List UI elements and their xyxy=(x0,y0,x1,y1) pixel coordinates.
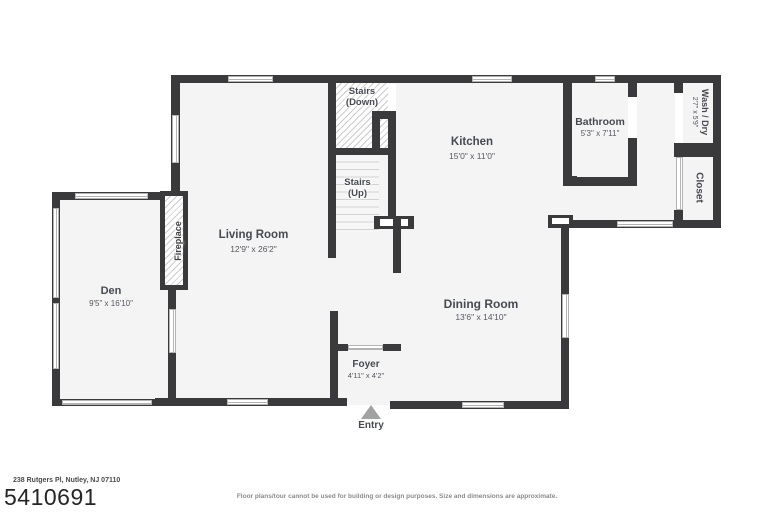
wall-segment xyxy=(572,177,637,186)
washdry-label: Wash / Dry 2'7" x 5'9" xyxy=(684,72,710,152)
property-address: 238 Rutgers Pl, Nutley, NJ 07110 xyxy=(13,477,120,484)
dining-room-label: Dining Room 13'6" x 14'10" xyxy=(411,297,551,322)
closet-label: Closet xyxy=(692,158,705,218)
window xyxy=(472,76,512,82)
wall-segment xyxy=(330,311,338,404)
closet-name: Closet xyxy=(693,158,705,218)
stairs-up-label: Stairs (Up) xyxy=(330,177,385,199)
wall-segment xyxy=(372,111,396,119)
wall-segment xyxy=(372,119,380,155)
window xyxy=(75,193,148,199)
window xyxy=(172,115,179,163)
door-inset xyxy=(552,218,569,224)
living-room-label: Living Room 12'9" x 26'2" xyxy=(181,229,326,254)
foyer-label: Foyer 4'11" x 4'2" xyxy=(336,359,396,381)
wall-segment xyxy=(393,216,401,273)
dining-room-dims: 13'6" x 14'10" xyxy=(411,312,551,322)
wall-segment xyxy=(388,111,396,217)
den-label: Den 9'5" x 16'10" xyxy=(61,285,161,308)
window xyxy=(228,76,273,82)
wall-segment xyxy=(328,83,336,258)
window xyxy=(462,402,504,408)
window xyxy=(227,399,268,405)
stairs-down-label: Stairs (Down) xyxy=(330,86,394,108)
den-dims: 9'5" x 16'10" xyxy=(61,299,161,308)
den-name: Den xyxy=(61,285,161,298)
closet-door xyxy=(676,157,683,210)
foyer-dims: 4'11" x 4'2" xyxy=(336,372,396,381)
listing-number: 5410691 xyxy=(4,484,97,511)
entry-label: Entry xyxy=(341,420,401,432)
stairs-down-line1: Stairs xyxy=(349,86,375,97)
living-room-dims: 12'9" x 26'2" xyxy=(181,244,326,254)
bathroom-name: Bathroom xyxy=(560,116,640,128)
window xyxy=(562,294,569,338)
window xyxy=(53,208,59,298)
window xyxy=(595,76,615,82)
kitchen-dims: 15'0" x 11'0" xyxy=(412,151,532,161)
washdry-opening xyxy=(675,93,683,143)
washdry-dims: 2'7" x 5'9" xyxy=(690,72,698,152)
stairs-up-line1: Stairs xyxy=(344,177,370,188)
wall-segment xyxy=(337,344,348,351)
washdry-name: Wash / Dry xyxy=(699,72,710,152)
stairs-down-line2: (Down) xyxy=(346,97,378,108)
window xyxy=(53,303,59,369)
bathroom-dims: 5'3" x 7'11" xyxy=(560,129,640,138)
entry-name: Entry xyxy=(341,420,401,432)
fireplace-name: Fireplace xyxy=(173,221,183,261)
wall-segment xyxy=(674,75,683,93)
wall-segment xyxy=(674,210,683,228)
kitchen-name: Kitchen xyxy=(412,136,532,150)
kitchen-label: Kitchen 15'0" x 11'0" xyxy=(412,136,532,161)
window xyxy=(617,221,673,227)
bathroom-label: Bathroom 5'3" x 7'11" xyxy=(560,116,640,139)
dining-room-name: Dining Room xyxy=(411,297,551,311)
floor-plan: Stairs (Down) Stairs (Up) Living Room 12… xyxy=(0,0,768,512)
living-room-name: Living Room xyxy=(181,229,326,243)
entry-arrow-icon xyxy=(361,405,381,419)
window xyxy=(62,400,152,405)
foyer-name: Foyer xyxy=(336,359,396,371)
foyer-door xyxy=(348,345,383,350)
fireplace-label: Fireplace xyxy=(168,198,180,284)
stairs-up-line2: (Up) xyxy=(348,188,367,199)
disclaimer-text: Floor plans/tour cannot be used for buil… xyxy=(237,493,557,500)
den-living-opening xyxy=(169,309,176,353)
wall-segment xyxy=(383,344,401,351)
wall-segment xyxy=(328,148,390,155)
